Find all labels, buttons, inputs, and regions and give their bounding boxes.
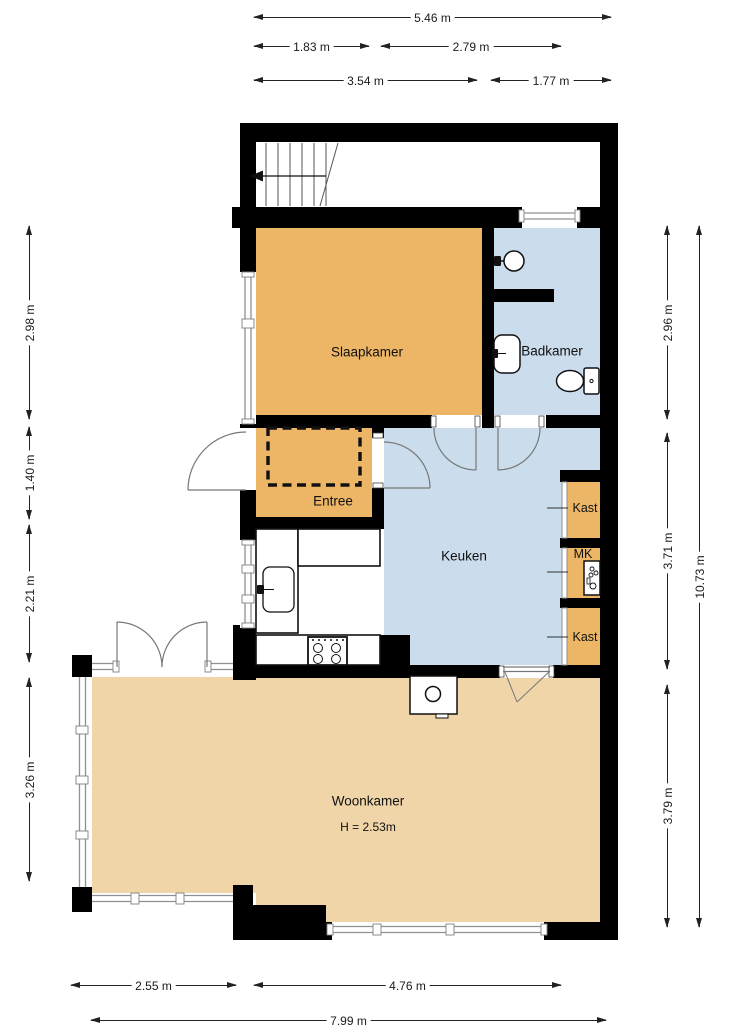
wall-left-jamb xyxy=(240,424,256,428)
dim-top-row3-left: 3.54 m xyxy=(253,75,478,87)
dim-bottom-right: 4.76 m xyxy=(253,980,562,992)
room-floors xyxy=(92,228,600,922)
wall-top xyxy=(240,123,618,142)
dim-left-3: 2.21 m xyxy=(24,524,36,663)
dim-bottom-left: 2.55 m xyxy=(70,980,237,992)
window-keuken-left xyxy=(240,540,256,628)
wall-left-mid xyxy=(240,490,256,540)
dim-right-1: 2.96 m xyxy=(662,225,674,420)
dim-top-left: 1.83 m xyxy=(253,41,370,53)
stairs-direction-arrow xyxy=(250,171,326,182)
dim-right-2: 3.71 m xyxy=(662,432,674,670)
wall-badkamer-partition xyxy=(494,289,554,302)
wall-badkamer-bottom xyxy=(546,415,600,428)
kast-top-label: Kast xyxy=(572,501,597,515)
floor-plan: Slaapkamer Badkamer Entree Keuken Kast M… xyxy=(0,0,730,1032)
dim-left-1: 2.98 m xyxy=(24,225,36,420)
wall-bottom-right xyxy=(544,922,618,940)
wall-keuken-woonkamer-right xyxy=(553,665,618,678)
staircase xyxy=(250,143,338,206)
wall-slaapkamer-bottom xyxy=(240,415,432,428)
wall-post-bottom-left xyxy=(72,887,92,912)
kast-sliding-doors xyxy=(562,482,567,665)
door-french-woonkamer xyxy=(117,622,207,667)
slaapkamer-label: Slaapkamer xyxy=(331,345,403,360)
wall-entree-bottom xyxy=(240,517,384,529)
mk-label: MK xyxy=(574,547,593,561)
badkamer-label: Badkamer xyxy=(521,344,583,359)
dim-right-total: 10.73 m xyxy=(694,225,706,928)
fireplace-icon xyxy=(410,676,457,718)
dim-right-3: 3.79 m xyxy=(662,684,674,928)
stair-diagonal xyxy=(320,143,338,206)
slaapkamer-floor xyxy=(256,228,482,415)
wall-kast-top xyxy=(560,470,600,482)
woonkamer-height-label: H = 2.53m xyxy=(340,820,396,834)
woonkamer-label: Woonkamer xyxy=(332,794,405,809)
kast-bottom-label: Kast xyxy=(572,630,597,644)
window-woonkamer-bottom xyxy=(327,924,547,935)
wall-right xyxy=(600,123,618,940)
woonkamer-floor-extension xyxy=(92,677,256,893)
dim-top-mid: 2.79 m xyxy=(380,41,562,53)
wall-corridor-bottom xyxy=(232,207,522,228)
window-woonkamer-bottom-left xyxy=(92,893,233,904)
washbasin-icon xyxy=(492,335,520,373)
wall-mk-kast xyxy=(560,598,600,608)
window-badkamer-top xyxy=(519,207,580,228)
dim-left-4: 3.26 m xyxy=(24,677,36,882)
wall-post-top-left xyxy=(72,655,92,677)
kitchen-sink-icon xyxy=(257,567,294,612)
door-front xyxy=(188,432,246,490)
dim-top-row3-right: 1.77 m xyxy=(490,75,612,87)
wall-slaapkamer-badkamer xyxy=(482,228,494,428)
wall-keuken-woonkamer-left xyxy=(240,665,500,678)
stove-icon xyxy=(308,637,347,665)
dim-left-2: 1.40 m xyxy=(24,426,36,520)
dim-bottom-total: 7.99 m xyxy=(90,1015,607,1027)
wall-corridor-bottom-right xyxy=(577,207,600,228)
toilet-icon xyxy=(557,368,600,394)
floor-plan-drawing xyxy=(0,0,730,1032)
dim-top-total: 5.46 m xyxy=(253,12,612,24)
window-slaapkamer-left xyxy=(240,272,256,424)
entree-label: Entree xyxy=(313,494,353,509)
window-woonkamer-left xyxy=(76,677,88,887)
meter-box-icon xyxy=(584,561,600,595)
keuken-label: Keuken xyxy=(441,549,487,564)
wall-step-wide xyxy=(233,905,326,940)
